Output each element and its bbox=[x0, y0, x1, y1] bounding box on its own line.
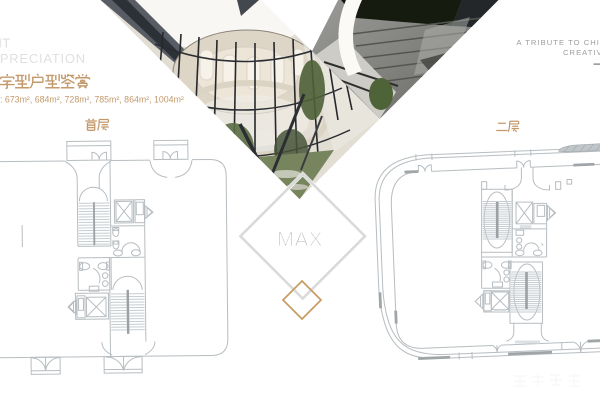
svg-text:APARTMENT: APARTMENT bbox=[0, 36, 11, 51]
svg-text:CREATIVITY: CREATIVITY bbox=[563, 48, 600, 57]
svg-text:APPRECIATION: APPRECIATION bbox=[0, 51, 86, 66]
svg-text:: 673m², 684m², 728m², 785m²,: : 673m², 684m², 728m², 785m², 864m², 100… bbox=[0, 95, 184, 105]
svg-text:MAX: MAX bbox=[277, 228, 323, 251]
svg-text:A TRIBUTE TO CHINESE: A TRIBUTE TO CHINESE bbox=[517, 38, 600, 47]
